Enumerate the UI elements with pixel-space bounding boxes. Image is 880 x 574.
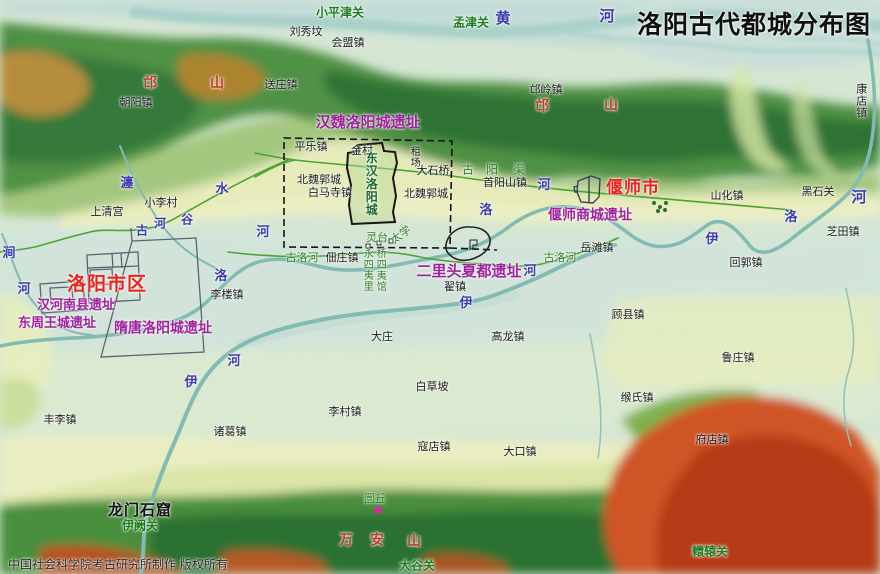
site-label: 汉魏洛阳城遗址 — [315, 115, 420, 131]
river-label: 洛 — [784, 211, 797, 225]
city-label: 洛阳市区 — [67, 275, 147, 295]
river-label: 黄 — [495, 11, 510, 27]
town-label: 回郭镇 — [730, 257, 763, 269]
river-label: 谷 — [181, 214, 193, 227]
town-label: 上清宫 — [91, 206, 124, 218]
town-label: 大庄 — [371, 331, 393, 343]
anc-label: 桥四夷馆 — [374, 248, 385, 292]
town-label: 高龙镇 — [492, 331, 525, 343]
anc-label: 太学 — [389, 224, 414, 246]
town-lg-label: 龙门石窟 — [108, 503, 172, 519]
river-label: 洛 — [214, 270, 227, 284]
town-label: 芝田镇 — [827, 226, 860, 238]
city-label: 偃师市 — [606, 180, 660, 198]
river-label: 河 — [17, 283, 30, 297]
town-label: 大石桥 — [417, 165, 450, 177]
mtn-label: 邙 — [143, 77, 157, 92]
site-label: 偃师商城遗址 — [548, 209, 632, 224]
town-label: 翟镇 — [444, 281, 466, 293]
luoyang-ancient-capitals-map: 洛阳古代都城分布图 中国社会科学院考古研究所制作 版权所有 刘秀坟会盟镇送庄镇朝… — [0, 0, 880, 574]
pass-label: 孟津关 — [453, 17, 489, 30]
town-label: 会盟镇 — [332, 37, 365, 49]
mtn-label: 安 — [370, 534, 384, 549]
mtn-label: 山 — [210, 77, 224, 92]
river-label: 古 — [136, 225, 148, 238]
anc-city-label: 东汉洛阳城 — [365, 152, 378, 217]
town-label: 李楼镇 — [211, 289, 244, 301]
town-label: 丰李镇 — [44, 414, 77, 426]
town-label: 邙岭镇 — [530, 84, 563, 96]
anc-label: 阳 — [486, 164, 498, 177]
town-label: 寇店镇 — [418, 441, 451, 453]
river-label: 河 — [154, 218, 166, 231]
town-label: 首阳山镇 — [483, 177, 527, 189]
town-label: 岳滩镇 — [581, 242, 614, 254]
pass-label: 小平津关 — [316, 7, 364, 20]
map-title: 洛阳古代都城分布图 — [637, 12, 871, 38]
town-label: 白草坡 — [416, 381, 449, 393]
anc-label: 古洛河 — [286, 252, 319, 264]
town-label: 北魏郭城 — [297, 174, 341, 186]
mtn-label: 山 — [407, 535, 421, 550]
river-label: 伊 — [705, 233, 718, 247]
town-label: 朝阳镇 — [120, 97, 153, 109]
river-label: 瀍 — [120, 177, 133, 191]
site-label: 汉河南县遗址 — [37, 299, 115, 313]
town-label: 佃庄镇 — [326, 252, 359, 264]
site-label: 东周王城遗址 — [18, 317, 96, 331]
town-label: 诸葛镇 — [214, 426, 247, 438]
river-label: 伊 — [459, 297, 472, 311]
mtn-label: 邙 — [535, 100, 549, 115]
anc-label: 永四夷里 — [361, 248, 372, 292]
anc-label: 古洛河 — [544, 252, 577, 264]
town-label: 北魏郭城 — [404, 188, 448, 200]
town-label: 缑氏镇 — [621, 392, 654, 404]
anc-label: 圜丘 — [364, 493, 386, 505]
town-label: 白马寺镇 — [308, 187, 352, 199]
anc-label: 灵台 — [366, 232, 388, 244]
town-label: 刘秀坟 — [290, 26, 323, 38]
site-label: 隋唐洛阳城遗址 — [114, 322, 212, 337]
river-label: 洛 — [479, 204, 492, 218]
town-label: 黑石关 — [802, 186, 835, 198]
river-label: 伊 — [184, 376, 197, 390]
river-label: 河 — [851, 190, 866, 206]
town-label: 李村镇 — [329, 406, 362, 418]
river-label: 河 — [537, 179, 550, 193]
pass-label: 轘辕关 — [692, 546, 728, 559]
town-label: 大口镇 — [504, 446, 537, 458]
town-label: 顾县镇 — [612, 309, 645, 321]
mtn-label: 山 — [604, 99, 618, 114]
anc-label: 渠 — [513, 164, 525, 177]
river-label: 河 — [599, 9, 614, 25]
pass-label: 大谷关 — [399, 560, 435, 573]
river-label: 河 — [256, 226, 269, 240]
river-label: 涧 — [2, 247, 15, 261]
river-label: 水 — [215, 183, 228, 197]
town-label: 府店镇 — [696, 434, 729, 446]
anc-label: 古 — [462, 164, 474, 177]
site-label: 二里头夏都遗址 — [416, 264, 521, 280]
town-label: 康店镇 — [855, 83, 867, 119]
map-credit: 中国社会科学院考古研究所制作 版权所有 — [8, 559, 228, 572]
town-label: 送庄镇 — [265, 79, 298, 91]
town-label: 山化镇 — [711, 190, 744, 202]
mtn-label: 万 — [339, 534, 353, 549]
river-label: 河 — [227, 355, 240, 369]
town-label: 平乐镇 — [295, 141, 328, 153]
town-label: 小李村 — [145, 197, 178, 209]
river-label: 河 — [523, 265, 536, 279]
town-label: 鲁庄镇 — [722, 352, 755, 364]
pass-label: 伊阙关 — [122, 520, 158, 533]
map-labels: 洛阳古代都城分布图 中国社会科学院考古研究所制作 版权所有 刘秀坟会盟镇送庄镇朝… — [0, 0, 880, 574]
